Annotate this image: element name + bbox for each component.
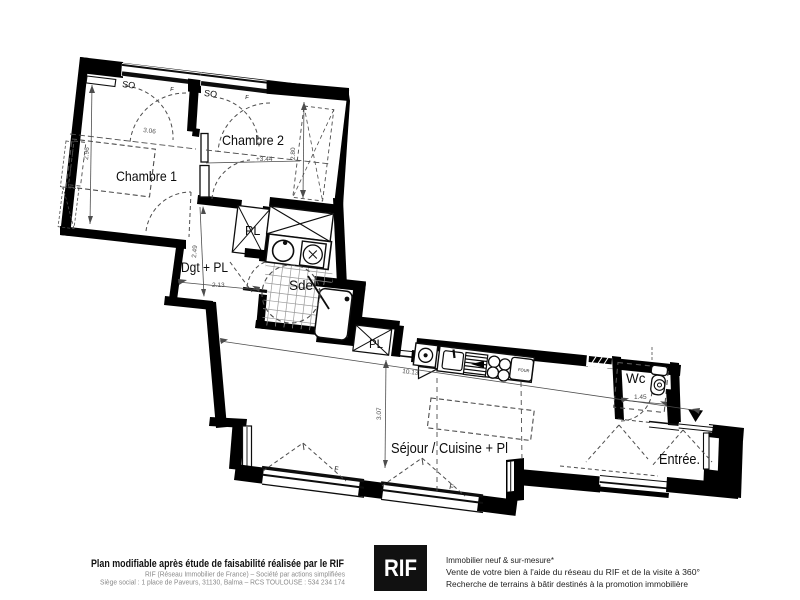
svg-text:2.96: 2.96 (83, 147, 91, 161)
svg-text:1.45: 1.45 (634, 394, 647, 401)
svg-text:RIF: RIF (384, 555, 417, 582)
svg-text:F: F (245, 95, 250, 101)
svg-text:PL: PL (369, 339, 384, 351)
svg-text:10.13: 10.13 (402, 368, 419, 377)
svg-text:Chambre 1: Chambre 1 (116, 168, 177, 184)
svg-text:Séjour / Cuisine + Pl: Séjour / Cuisine + Pl (391, 441, 508, 457)
svg-text:2.80: 2.80 (290, 147, 297, 160)
svg-text:2.49: 2.49 (191, 245, 199, 259)
svg-text:SO: SO (122, 79, 136, 91)
svg-text:Dgt + PL: Dgt + PL (181, 260, 228, 275)
svg-text:F: F (449, 484, 454, 491)
svg-text:2.13: 2.13 (212, 282, 225, 289)
svg-text:Entrée.: Entrée. (659, 452, 700, 468)
svg-text:F: F (170, 87, 175, 93)
svg-text:Wc: Wc (626, 371, 646, 386)
svg-text:Vente de votre bien à l'aide d: Vente de votre bien à l'aide du réseau d… (446, 568, 700, 577)
svg-text:PL: PL (245, 224, 260, 238)
svg-text:Sde: Sde (289, 278, 313, 293)
svg-text:RIF (Réseau Immobilier de Fran: RIF (Réseau Immobilier de France) – Soci… (145, 572, 345, 579)
svg-text:Recherche de terrains à bâtir: Recherche de terrains à bâtir destinés à… (446, 580, 689, 589)
svg-text:Plan modifiable après étude de: Plan modifiable après étude de faisabili… (91, 558, 344, 570)
svg-text:3.07: 3.07 (376, 407, 383, 420)
svg-text:Siège social : 1 place de Pave: Siège social : 1 place de Paveurs, 31130… (100, 580, 345, 587)
svg-text:Immobilier neuf & sur-mesure*: Immobilier neuf & sur-mesure* (446, 556, 554, 565)
svg-text:3.06: 3.06 (143, 127, 157, 136)
svg-text:Chambre 2: Chambre 2 (222, 132, 284, 148)
svg-text:+3.44: +3.44 (256, 156, 273, 163)
svg-text:SO: SO (204, 88, 218, 100)
